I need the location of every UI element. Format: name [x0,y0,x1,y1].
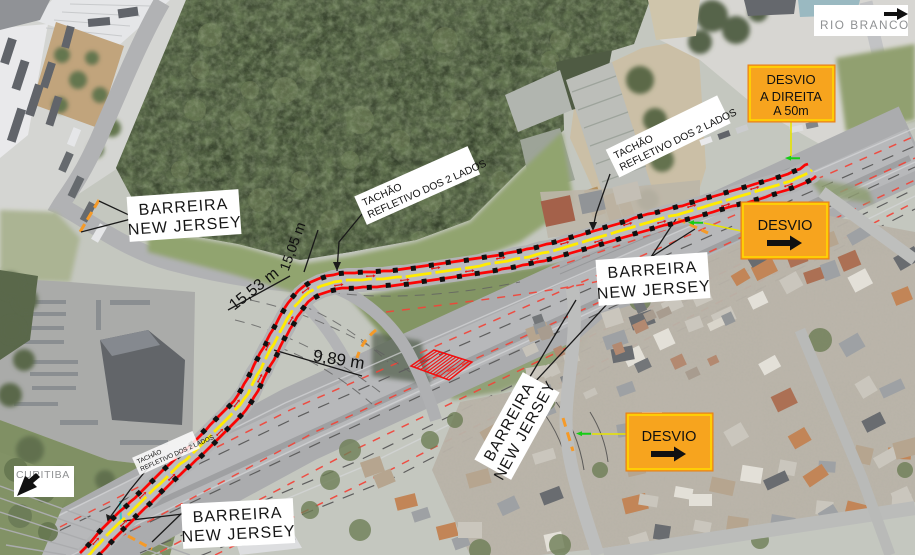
svg-text:DESVIO: DESVIO [766,72,815,87]
svg-text:A 50m: A 50m [773,104,808,118]
svg-text:DESVIO: DESVIO [642,429,697,445]
svg-text:RIO BRANCO: RIO BRANCO [820,18,910,32]
svg-text:A DIREITA: A DIREITA [760,89,822,104]
svg-text:DESVIO: DESVIO [758,218,813,234]
